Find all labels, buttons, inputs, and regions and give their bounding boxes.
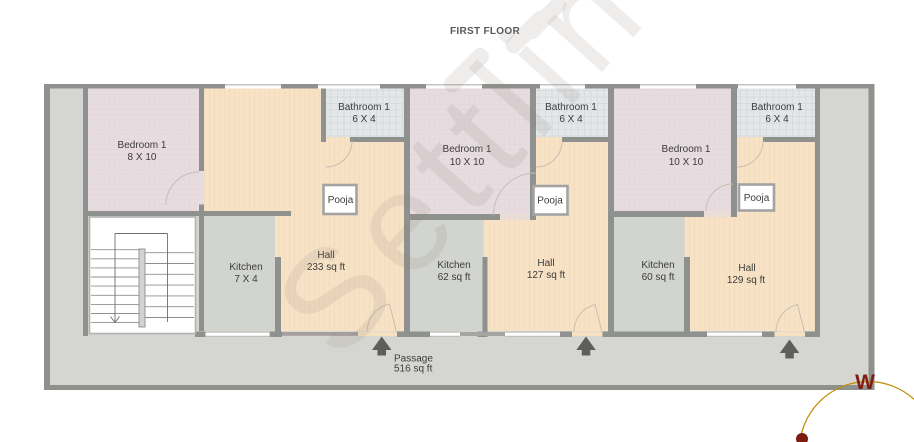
svg-text:Bathroom 1: Bathroom 1: [338, 102, 390, 113]
svg-text:Kitchen: Kitchen: [641, 260, 674, 271]
svg-text:Pooja: Pooja: [537, 196, 563, 207]
svg-text:10 X 10: 10 X 10: [669, 157, 704, 168]
svg-text:60 sq ft: 60 sq ft: [642, 272, 675, 283]
svg-text:Bedroom 1: Bedroom 1: [662, 144, 711, 155]
svg-text:516 sq ft: 516 sq ft: [394, 364, 433, 375]
svg-text:W: W: [855, 371, 875, 394]
svg-text:6 X 4: 6 X 4: [765, 114, 789, 125]
svg-text:Bedroom 1: Bedroom 1: [118, 140, 167, 151]
svg-text:Bathroom 1: Bathroom 1: [751, 102, 803, 113]
svg-text:127 sq ft: 127 sq ft: [527, 270, 566, 281]
svg-text:8 X 10: 8 X 10: [128, 152, 157, 163]
svg-text:Hall: Hall: [738, 263, 755, 274]
svg-text:Hall: Hall: [537, 258, 554, 269]
svg-text:Pooja: Pooja: [744, 193, 770, 204]
svg-text:6 X 4: 6 X 4: [352, 114, 376, 125]
svg-text:129 sq ft: 129 sq ft: [727, 275, 766, 286]
